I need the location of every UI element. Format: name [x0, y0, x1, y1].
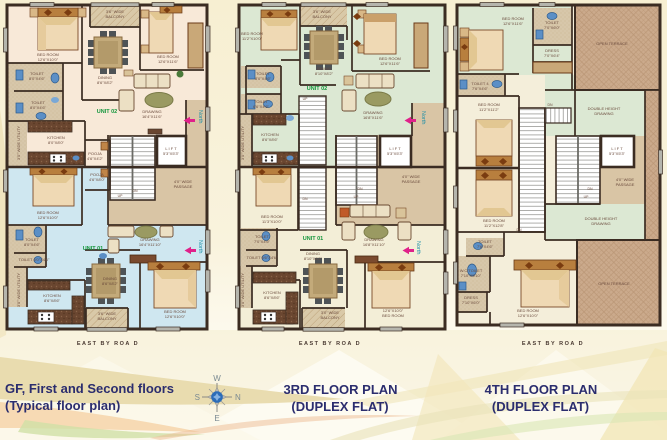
svg-text:E: E	[214, 414, 219, 423]
svg-text:North: North	[415, 241, 421, 254]
svg-text:DN: DN	[302, 197, 308, 201]
svg-text:BED ROOM: BED ROOM	[382, 313, 404, 318]
svg-text:12'6"X10'0": 12'6"X10'0"	[165, 314, 186, 319]
svg-text:16'4"X11'10": 16'4"X11'10"	[139, 242, 162, 247]
svg-text:11'3"X10'0": 11'3"X10'0"	[262, 219, 283, 224]
svg-text:TOILET 6'0"X4'6": TOILET 6'0"X4'6"	[19, 257, 50, 262]
svg-text:11'2"X10'0": 11'2"X10'0"	[242, 36, 263, 41]
svg-text:DN: DN	[587, 187, 593, 191]
svg-text:8'6"X8'6": 8'6"X8'6"	[264, 295, 281, 300]
svg-text:3'0" WIDE UTILITY: 3'0" WIDE UTILITY	[240, 273, 245, 308]
svg-text:3RD FLOOR PLAN: 3RD FLOOR PLAN	[283, 382, 397, 397]
svg-text:UP: UP	[303, 97, 309, 101]
svg-text:EAST BY ROA D: EAST BY ROA D	[77, 341, 139, 347]
svg-text:DN: DN	[357, 187, 363, 191]
svg-text:16'4"X11'6": 16'4"X11'6"	[142, 114, 163, 119]
svg-text:5'3"X5'3": 5'3"X5'3"	[609, 151, 626, 156]
svg-text:North: North	[197, 110, 203, 123]
svg-text:BALCONY: BALCONY	[105, 14, 124, 19]
svg-text:7'0"X6'0": 7'0"X6'0"	[544, 25, 561, 30]
svg-text:PASSAGE: PASSAGE	[402, 179, 421, 184]
svg-text:8'6"X8'6": 8'6"X8'6"	[262, 137, 279, 142]
svg-text:4'6"X8'0": 4'6"X8'0"	[89, 177, 106, 182]
svg-text:16'8"X11'10": 16'8"X11'10"	[363, 242, 386, 247]
svg-text:UP: UP	[584, 195, 590, 199]
svg-text:12'6"X11'6": 12'6"X11'6"	[503, 21, 524, 26]
svg-text:S: S	[195, 393, 200, 402]
svg-text:12'6"X11'6": 12'6"X11'6"	[158, 59, 179, 64]
svg-text:(DUPLEX FLAT): (DUPLEX FLAT)	[492, 399, 589, 414]
svg-text:6'6"X4'6": 6'6"X4'6"	[253, 104, 270, 109]
svg-text:N: N	[235, 393, 241, 402]
svg-text:7'10"X6'0": 7'10"X6'0"	[462, 300, 481, 305]
svg-text:11'2"X12'8": 11'2"X12'8"	[484, 223, 505, 228]
svg-text:UP: UP	[118, 194, 124, 198]
svg-text:8'0"X8'0": 8'0"X8'0"	[48, 140, 65, 145]
svg-text:3'0" WIDE UTILITY: 3'0" WIDE UTILITY	[16, 273, 21, 308]
svg-text:7'0"X4'6": 7'0"X4'6"	[254, 239, 271, 244]
svg-text:PASSAGE: PASSAGE	[616, 182, 635, 187]
svg-text:8'0"X4'6": 8'0"X4'6"	[24, 242, 41, 247]
svg-text:3'0" WIDE UTILITY: 3'0" WIDE UTILITY	[16, 126, 21, 161]
svg-text:8'0"X4'6": 8'0"X4'6"	[255, 76, 272, 81]
svg-text:5'3"X5'3": 5'3"X5'3"	[163, 151, 180, 156]
svg-text:5'3"X5'3": 5'3"X5'3"	[387, 151, 404, 156]
svg-text:BALCONY: BALCONY	[320, 315, 339, 320]
svg-text:DN: DN	[132, 189, 138, 193]
svg-text:8'10"X8'2": 8'10"X8'2"	[304, 256, 323, 261]
svg-text:(DUPLEX FLAT): (DUPLEX FLAT)	[291, 399, 388, 414]
svg-text:PASSAGE: PASSAGE	[174, 184, 193, 189]
svg-text:BALCONY: BALCONY	[97, 316, 116, 321]
svg-text:UNIT 02: UNIT 02	[97, 109, 117, 115]
svg-text:7'6"X4'6": 7'6"X4'6"	[472, 86, 489, 91]
svg-text:OPEN TERRACE: OPEN TERRACE	[598, 281, 630, 286]
svg-text:UNIT 01: UNIT 01	[83, 246, 103, 252]
svg-text:12'6"X10'0": 12'6"X10'0"	[38, 215, 59, 220]
svg-text:8'0"X4'6": 8'0"X4'6"	[30, 105, 47, 110]
svg-text:12'6"X10'0": 12'6"X10'0"	[518, 313, 539, 318]
svg-text:3'0" WIDE UTILITY: 3'0" WIDE UTILITY	[240, 126, 245, 161]
svg-text:12'6"X11'6": 12'6"X11'6"	[380, 61, 401, 66]
svg-text:8'6"X8'2": 8'6"X8'2"	[102, 281, 119, 286]
svg-text:UNIT 01: UNIT 01	[303, 236, 323, 242]
svg-text:OPEN TERRACE: OPEN TERRACE	[596, 41, 628, 46]
svg-text:DN: DN	[516, 228, 522, 232]
svg-text:UP: UP	[354, 195, 360, 199]
svg-text:16'8"X11'6": 16'8"X11'6"	[363, 115, 384, 120]
svg-text:7'6"X4'6": 7'6"X4'6"	[477, 244, 494, 249]
svg-text:TOILET 6'6"X4'6": TOILET 6'6"X4'6"	[247, 255, 278, 260]
svg-text:7'0"X6'4": 7'0"X6'4"	[544, 53, 561, 58]
svg-text:EAST BY ROA D: EAST BY ROA D	[299, 341, 361, 347]
svg-text:8'10"X8'2": 8'10"X8'2"	[315, 71, 334, 76]
svg-text:12'6"X10'0": 12'6"X10'0"	[38, 57, 59, 62]
svg-text:W: W	[213, 374, 221, 383]
svg-text:EAST BY ROA D: EAST BY ROA D	[522, 341, 584, 347]
svg-text:North: North	[420, 111, 426, 124]
svg-text:8'0"X4'6": 8'0"X4'6"	[29, 76, 46, 81]
svg-text:4TH FLOOR PLAN: 4TH FLOOR PLAN	[485, 382, 598, 397]
svg-text:8'6"X8'2": 8'6"X8'2"	[97, 80, 114, 85]
svg-text:7'10"X5'10": 7'10"X5'10"	[461, 273, 482, 278]
svg-text:DN: DN	[547, 103, 553, 107]
svg-text:DRAWING: DRAWING	[594, 111, 613, 116]
svg-text:4'6"X4'2": 4'6"X4'2"	[87, 156, 104, 161]
svg-text:North: North	[197, 240, 203, 253]
svg-text:DRAWING: DRAWING	[591, 221, 610, 226]
svg-text:UNIT 02: UNIT 02	[307, 86, 327, 92]
svg-text:GF, First and Second floors: GF, First and Second floors	[5, 381, 174, 396]
svg-text:11'2"X11'2": 11'2"X11'2"	[479, 107, 499, 112]
svg-text:8'6"X8'6": 8'6"X8'6"	[44, 298, 61, 303]
svg-text:(Typical floor plan): (Typical floor plan)	[5, 398, 120, 413]
svg-text:BALCONY: BALCONY	[312, 14, 331, 19]
